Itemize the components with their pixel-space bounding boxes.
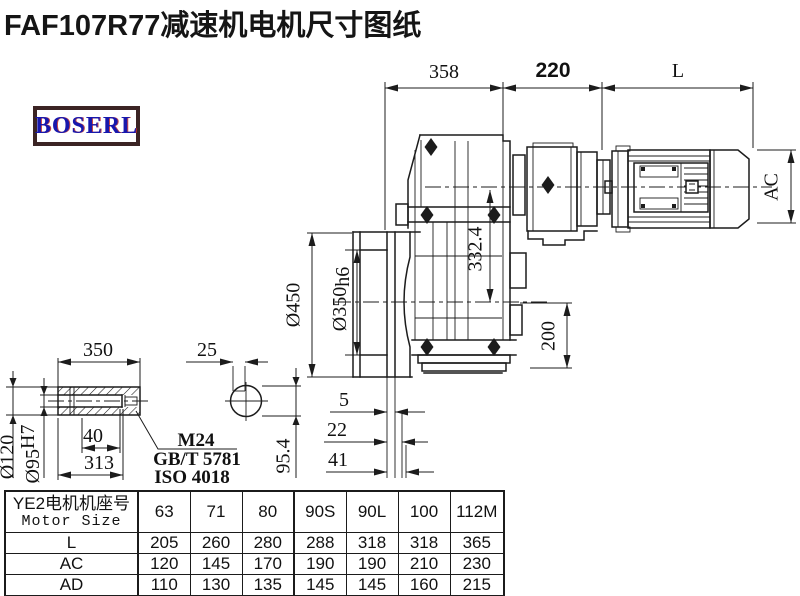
dim-25: 25	[197, 339, 217, 361]
table-cell: 170	[242, 554, 294, 575]
table-header-row: YE2电机机座号 Motor Size 63 71 80 90S 90L 100…	[5, 491, 504, 533]
dim-358: 358	[429, 61, 459, 83]
dim-ac: AC	[761, 173, 783, 201]
adapter-housing-drawing	[513, 143, 610, 245]
dim-40: 40	[83, 425, 103, 447]
table-cell: 230	[450, 554, 504, 575]
table-cell: 318	[346, 533, 398, 554]
header-en: Motor Size	[6, 514, 137, 531]
dimension-d350: Ø350h6	[329, 250, 360, 355]
row-label: L	[5, 533, 138, 554]
page-title: FAF107R77减速机电机尺寸图纸	[4, 2, 421, 44]
boserl-logo-text: BOSERL	[35, 114, 138, 138]
size-column-header: 63	[138, 491, 190, 533]
hollow-shaft-drawing: 350 Ø120 Ø95H7 40 313 M24 GB/T 5781 ISO …	[0, 339, 241, 488]
table-cell: 210	[398, 554, 450, 575]
dimension-5-22-41: 5 22 41	[324, 377, 434, 478]
size-column-header: 80	[242, 491, 294, 533]
size-column-header: 71	[190, 491, 242, 533]
table-cell: 260	[190, 533, 242, 554]
motor-size-table: YE2电机机座号 Motor Size 63 71 80 90S 90L 100…	[4, 490, 505, 596]
oil-plug-icon	[542, 176, 555, 194]
dim-332: 332.4	[465, 227, 487, 272]
size-column-header: 100	[398, 491, 450, 533]
output-flange-drawing	[353, 232, 420, 377]
dim-313: 313	[84, 452, 114, 474]
boserl-logo: BOSERL	[33, 106, 140, 146]
table-cell: 365	[450, 533, 504, 554]
dim-22: 22	[327, 419, 347, 441]
size-column-header: 90L	[346, 491, 398, 533]
standard-iso: ISO 4018	[154, 467, 230, 488]
table-row: AD 110 130 135 145 145 160 215	[5, 575, 504, 596]
table-row: L 205 260 280 288 318 318 365	[5, 533, 504, 554]
table-cell: 288	[294, 533, 346, 554]
gearbox-drawing	[396, 135, 526, 373]
dim-d350: Ø350h6	[329, 267, 354, 331]
dim-350: 350	[83, 339, 113, 361]
table-cell: 205	[138, 533, 190, 554]
row-label: AD	[5, 575, 138, 596]
dim-d95: Ø95H7	[17, 425, 44, 484]
dim-41: 41	[328, 449, 348, 471]
table-header-cell: YE2电机机座号 Motor Size	[5, 491, 138, 533]
table-cell: 130	[190, 575, 242, 596]
dim-d450: Ø450	[283, 283, 305, 327]
dimension-drawing-page: 358 220 L AC	[0, 0, 800, 596]
size-column-header: 90S	[294, 491, 346, 533]
dim-5: 5	[339, 389, 349, 411]
motor-drawing	[605, 146, 749, 232]
table-cell: 145	[346, 575, 398, 596]
table-row: AC 120 145 170 190 190 210 230	[5, 554, 504, 575]
table-cell: 318	[398, 533, 450, 554]
table-cell: 190	[346, 554, 398, 575]
dimension-200: 200	[520, 303, 572, 368]
dim-L: L	[672, 60, 684, 82]
dim-954: 95.4	[273, 439, 295, 474]
table-cell: 135	[242, 575, 294, 596]
size-column-header: 112M	[450, 491, 504, 533]
table-cell: 215	[450, 575, 504, 596]
table-cell: 110	[138, 575, 190, 596]
header-cn: YE2电机机座号	[6, 494, 137, 514]
table-cell: 190	[294, 554, 346, 575]
table-cell: 280	[242, 533, 294, 554]
oil-plug-icon	[425, 138, 438, 156]
table-cell: 145	[190, 554, 242, 575]
table-cell: 120	[138, 554, 190, 575]
dimension-ac: AC	[757, 150, 796, 223]
row-label: AC	[5, 554, 138, 575]
thread-callout: M24	[178, 430, 215, 451]
table-cell: 160	[398, 575, 450, 596]
dim-200: 200	[538, 321, 560, 351]
dim-220: 220	[535, 59, 570, 82]
table-cell: 145	[294, 575, 346, 596]
